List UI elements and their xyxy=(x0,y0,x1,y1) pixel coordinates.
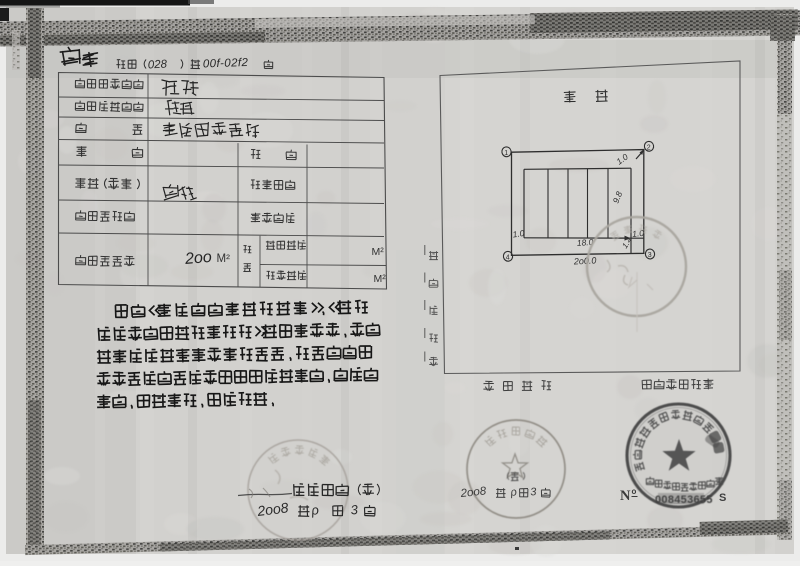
svg-text:1.0: 1.0 xyxy=(512,228,525,240)
svg-text:00f-02f2: 00f-02f2 xyxy=(203,57,249,71)
svg-text:1.0: 1.0 xyxy=(632,228,645,239)
svg-text:o: o xyxy=(632,487,637,496)
svg-text:3: 3 xyxy=(648,252,652,259)
svg-text:4: 4 xyxy=(506,255,510,262)
svg-text:M²: M² xyxy=(372,246,385,258)
svg-text:S: S xyxy=(719,492,726,504)
svg-text:1: 1 xyxy=(504,150,508,157)
svg-text:2οο: 2οο xyxy=(183,249,212,268)
svg-text:M²: M² xyxy=(374,273,387,285)
svg-text:2: 2 xyxy=(647,145,651,152)
svg-text:N: N xyxy=(620,488,631,504)
svg-text:028: 028 xyxy=(148,58,168,71)
svg-text:2ο0.0: 2ο0.0 xyxy=(573,255,597,266)
svg-text:M²: M² xyxy=(217,253,231,265)
